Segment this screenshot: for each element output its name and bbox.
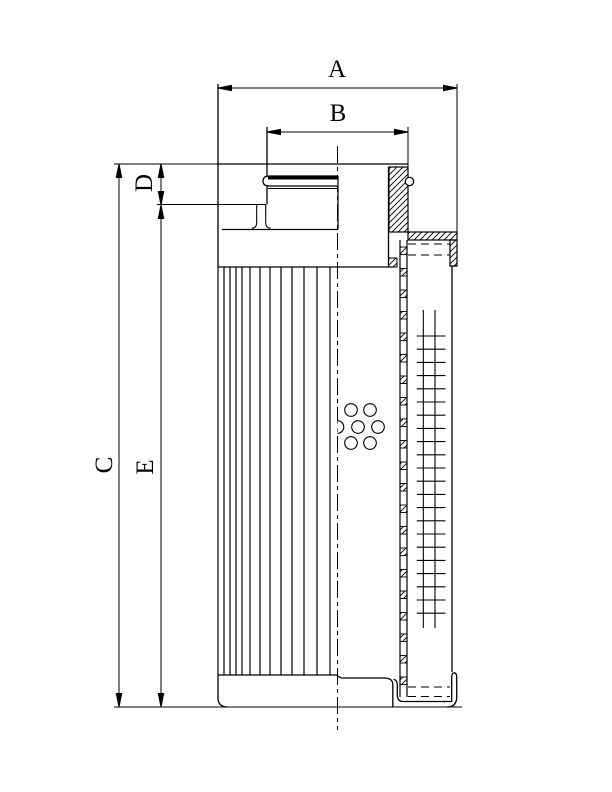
arrowhead-icon bbox=[158, 205, 163, 219]
pleated-media bbox=[218, 267, 330, 675]
arrowhead-icon bbox=[158, 694, 163, 708]
technical-drawing: A B C D E bbox=[0, 0, 612, 792]
arrowhead-icon bbox=[158, 164, 163, 178]
arrowhead-icon bbox=[116, 164, 121, 178]
o-ring-icon bbox=[405, 177, 413, 185]
dim-label-a: A bbox=[328, 56, 346, 83]
support-tube-wall-sections bbox=[400, 247, 407, 685]
arrowhead-icon bbox=[444, 85, 458, 90]
thread-major-line bbox=[268, 176, 338, 179]
cap-corner-left bbox=[218, 675, 228, 707]
inner-leg bbox=[266, 205, 271, 229]
dim-label-c: C bbox=[91, 457, 118, 474]
dimension-c bbox=[116, 164, 121, 707]
dim-label-e: E bbox=[132, 459, 159, 474]
skirt-section-hatch bbox=[389, 258, 398, 267]
arrowhead-icon bbox=[218, 85, 232, 90]
perforation-holes bbox=[338, 404, 385, 450]
arrowhead-icon bbox=[116, 694, 121, 708]
cap-top-edge bbox=[218, 675, 393, 707]
arrowhead-icon bbox=[158, 192, 163, 206]
drawing-sheet: A B C D E bbox=[0, 0, 612, 792]
hidden-lines bbox=[408, 244, 450, 697]
dimension-d-e bbox=[158, 164, 163, 707]
wire-mesh bbox=[417, 310, 446, 628]
dim-label-d: D bbox=[131, 174, 158, 192]
dim-label-b: B bbox=[330, 100, 347, 127]
dimension-labels: A B C D E bbox=[91, 56, 346, 475]
inner-leg bbox=[252, 205, 257, 229]
flange-hatch bbox=[408, 232, 457, 240]
arrowhead-icon bbox=[267, 129, 281, 134]
flange-wall-hatch bbox=[450, 240, 457, 266]
arrowhead-icon bbox=[395, 129, 409, 134]
sectioned-wall-hatch bbox=[389, 167, 408, 232]
cap-rim-left bbox=[394, 679, 398, 685]
